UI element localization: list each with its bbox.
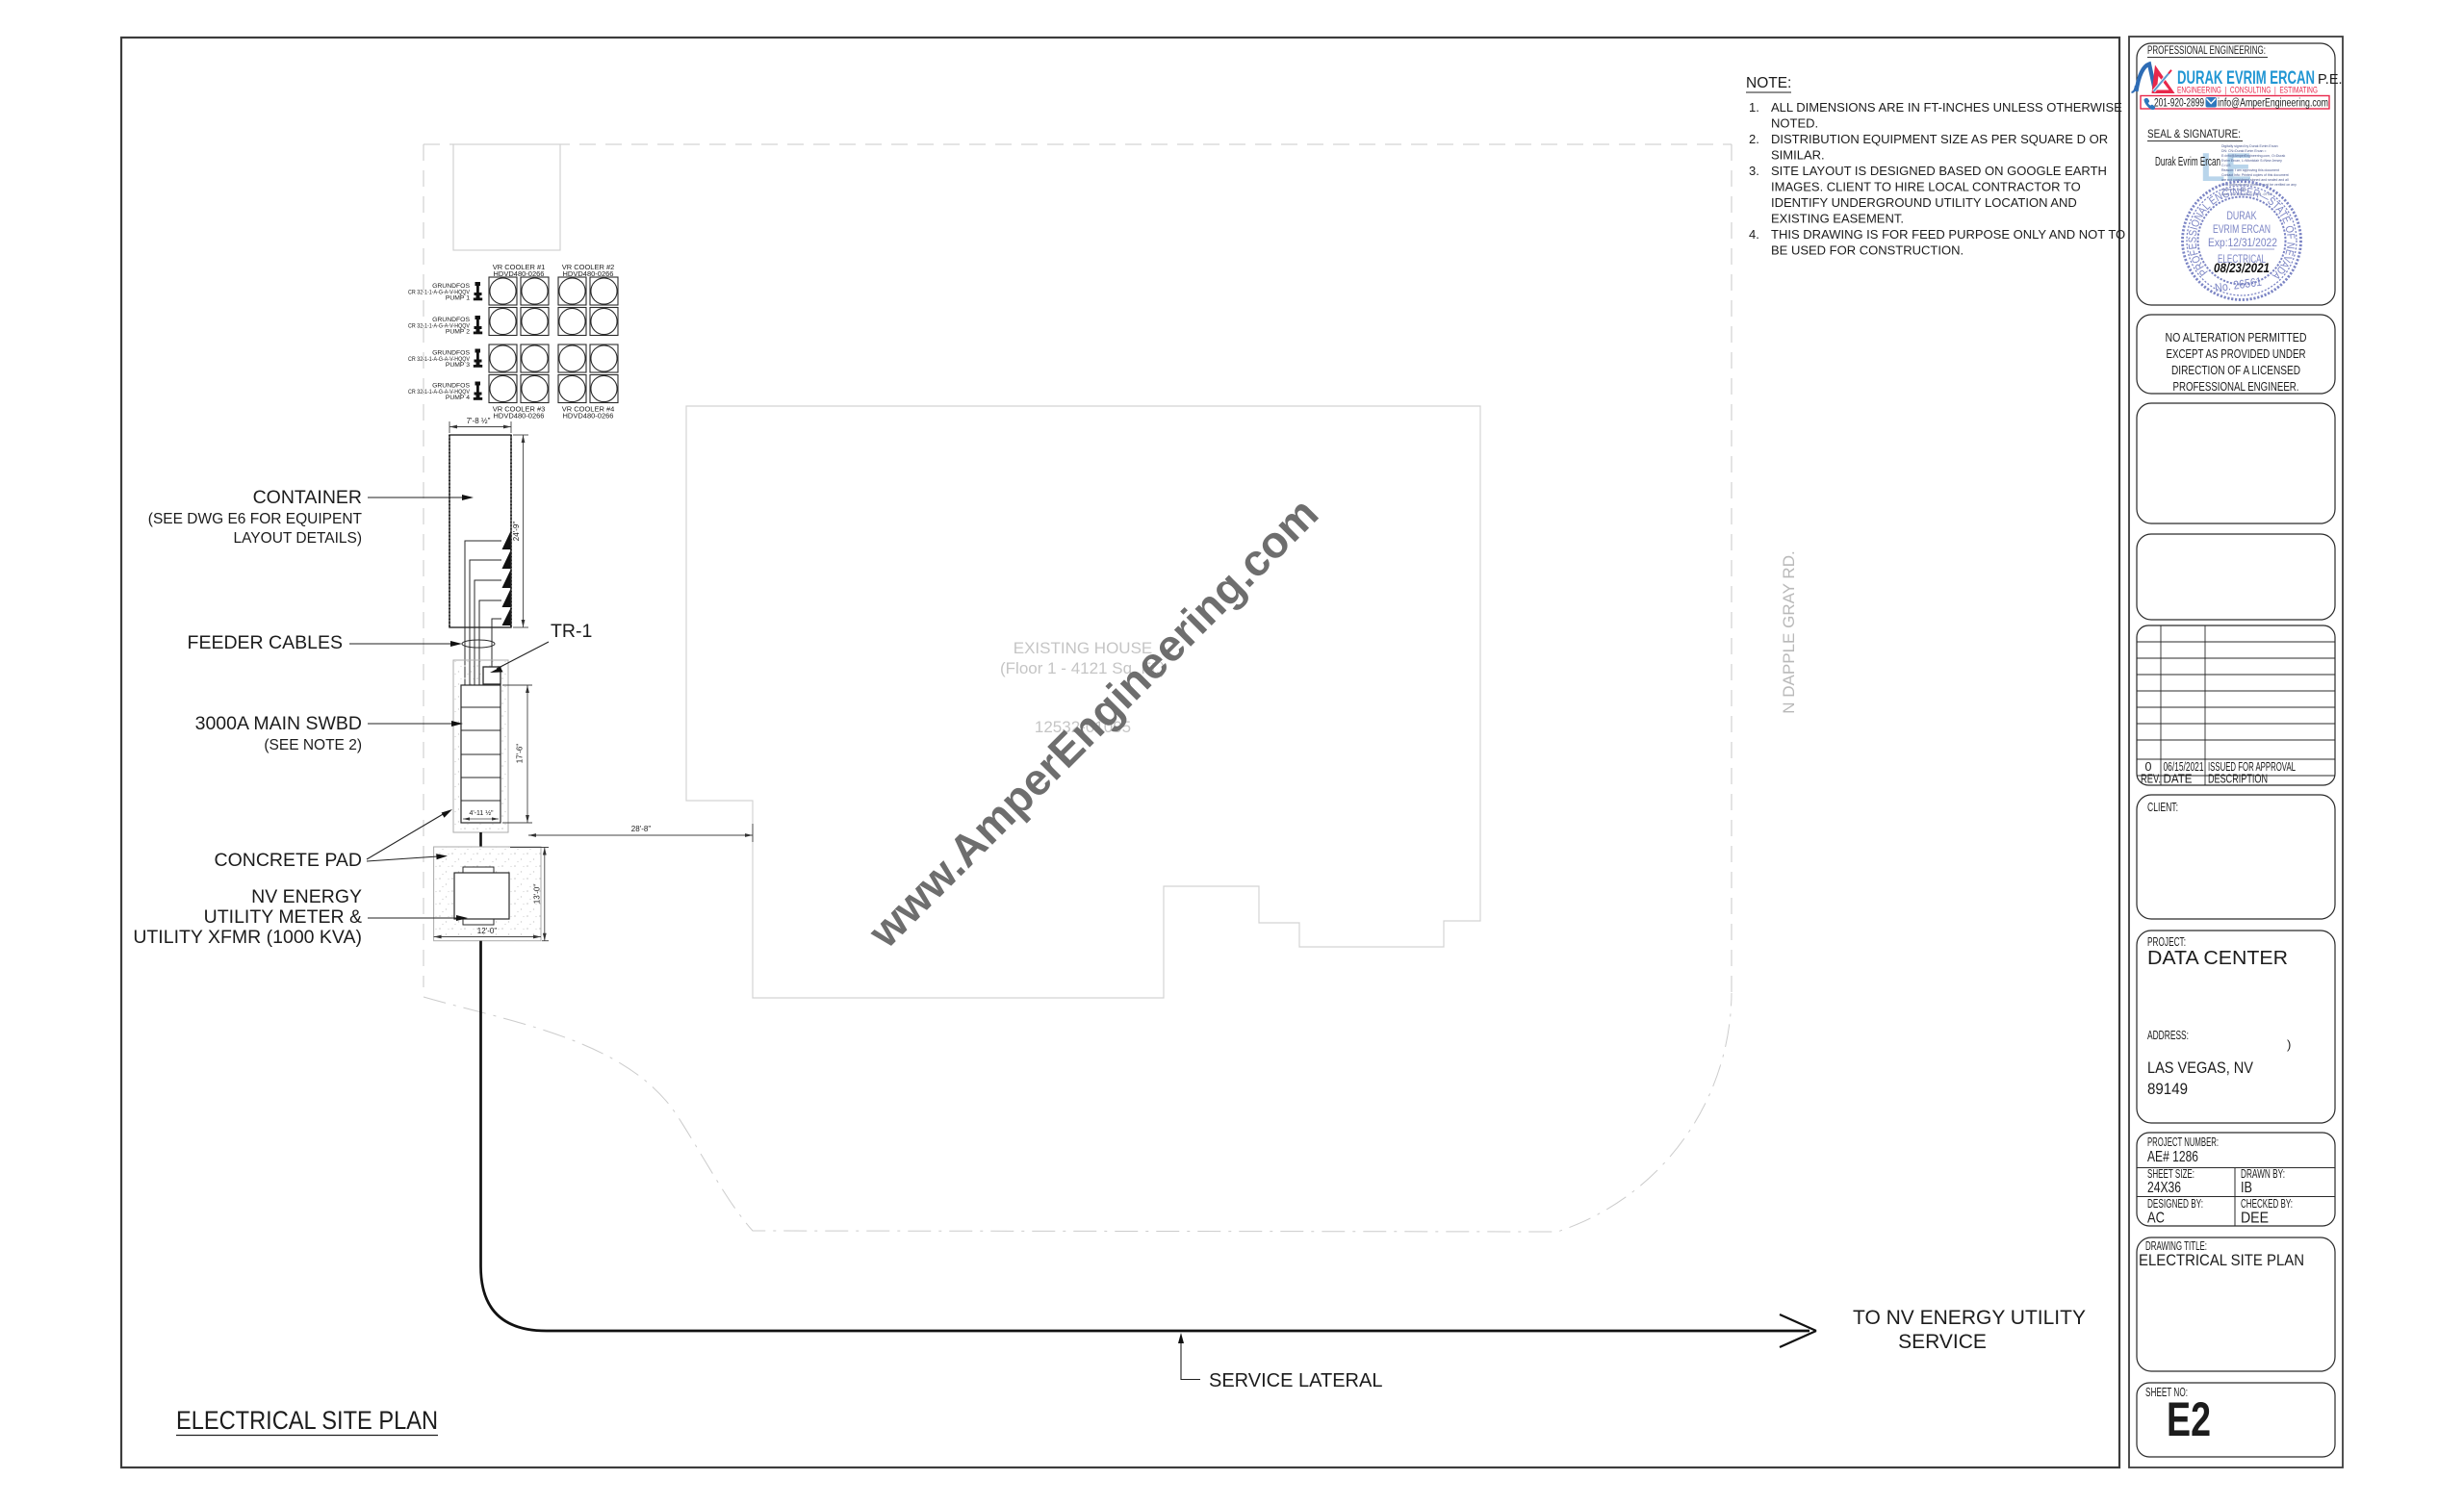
svg-text:DESIGNED BY:: DESIGNED BY: [2147,1197,2203,1211]
svg-text:PROJECT:: PROJECT: [2147,935,2186,949]
svg-text:E=info@AmperEngineering.com, O: E=info@AmperEngineering.com, O=Durak [2221,154,2285,158]
svg-text:DATA CENTER: DATA CENTER [2147,948,2288,969]
svg-text:PUMP 2: PUMP 2 [446,329,470,336]
svg-text:info@AmperEngineering.com: info@AmperEngineering.com [2218,98,2328,110]
svg-text:Contact Info: Printed copies o: Contact Info: Printed copies of this doc… [2221,173,2289,177]
svg-text:www.AmperEngineering.com: www.AmperEngineering.com [858,488,1327,957]
svg-text:DIRECTION OF A LICENSED: DIRECTION OF A LICENSED [2171,363,2300,377]
svg-text:28'-8": 28'-8" [631,825,652,833]
svg-text:THIS DRAWING IS FOR FEED PURPO: THIS DRAWING IS FOR FEED PURPOSE ONLY AN… [1771,227,2125,242]
svg-text:UTILITY XFMR (1000 KVA): UTILITY XFMR (1000 KVA) [133,927,362,948]
svg-text:HDVD480-0266: HDVD480-0266 [563,269,614,278]
svg-text:4.: 4. [1749,227,1759,242]
svg-text:7'-8 ½": 7'-8 ½" [467,417,491,425]
svg-text:IDENTIFY UNDERGROUND UTILITY L: IDENTIFY UNDERGROUND UTILITY LOCATION AN… [1771,195,2077,210]
svg-text:CONCRETE PAD: CONCRETE PAD [215,850,363,871]
svg-text:SHA authenticated printed must: SHA authenticated printed must be verifi… [2221,183,2297,187]
svg-text:PROFESSIONAL ENGINEER.: PROFESSIONAL ENGINEER. [2173,379,2299,394]
svg-text:13'-0": 13'-0" [533,884,542,905]
svg-text:SERVICE LATERAL: SERVICE LATERAL [1209,1370,1382,1391]
svg-text:ENGINEERING | CONSULTING |: ENGINEERING | CONSULTING | ESTIMATING [2177,86,2318,96]
svg-text:LAYOUT DETAILS): LAYOUT DETAILS) [233,530,362,547]
svg-text:17'-6": 17'-6" [516,744,525,764]
svg-text:DESCRIPTION: DESCRIPTION [2208,773,2268,786]
svg-text:EVRIM ERCAN: EVRIM ERCAN [2213,224,2271,236]
svg-text:DATE: DATE [2164,773,2193,786]
svg-text:CONTAINER: CONTAINER [253,487,362,508]
svg-text:HDVD480-0266: HDVD480-0266 [494,269,545,278]
svg-text:ADDRESS:: ADDRESS: [2147,1029,2189,1042]
svg-text:TR-1: TR-1 [551,621,592,642]
svg-text:PROFESSIONAL ENGINEERING:: PROFESSIONAL ENGINEERING: [2147,45,2266,57]
svg-text:CHECKED BY:: CHECKED BY: [2241,1197,2293,1211]
svg-text:HDVD480-0266: HDVD480-0266 [494,412,545,421]
svg-text:FEEDER CABLES: FEEDER CABLES [188,632,343,653]
svg-text:PUMP 4: PUMP 4 [446,395,470,401]
svg-text:ALL DIMENSIONS ARE IN FT-INCHE: ALL DIMENSIONS ARE IN FT-INCHES UNLESS O… [1771,100,2122,115]
svg-text:C=US: C=US [2221,164,2231,167]
svg-text:89149: 89149 [2147,1080,2188,1098]
svg-text:3.: 3. [1749,164,1759,178]
svg-text:3000A MAIN SWBD: 3000A MAIN SWBD [195,713,362,734]
svg-text:IB: IB [2241,1180,2252,1196]
svg-text:ELECTRICAL SITE PLAN: ELECTRICAL SITE PLAN [2139,1251,2304,1269]
svg-text:4'-11 ½": 4'-11 ½" [469,809,494,817]
svg-text:BE USED FOR CONSTRUCTION.: BE USED FOR CONSTRUCTION. [1771,243,1963,258]
svg-text:HDVD480-0266: HDVD480-0266 [563,412,614,421]
svg-text:E2: E2 [2167,1392,2211,1446]
svg-text:AE# 1286: AE# 1286 [2147,1149,2198,1165]
svg-text:24'-9": 24'-9" [512,522,521,542]
svg-text:PUMP 3: PUMP 3 [446,362,470,369]
svg-text:2.: 2. [1749,132,1759,146]
svg-text:UTILITY METER &: UTILITY METER & [204,906,362,928]
svg-text:PUMP 1: PUMP 1 [446,295,470,302]
svg-text:201-920-2899: 201-920-2899 [2154,98,2204,110]
svg-text:24X36: 24X36 [2147,1180,2181,1196]
svg-text:NOTED.: NOTED. [1771,116,1818,131]
svg-text:IMAGES. CLIENT TO HIRE LOCAL C: IMAGES. CLIENT TO HIRE LOCAL CONTRACTOR … [1771,180,2081,194]
svg-text:SEAL & SIGNATURE:: SEAL & SIGNATURE: [2147,129,2241,140]
svg-text:AC: AC [2147,1211,2165,1227]
svg-text:(SEE NOTE 2): (SEE NOTE 2) [264,737,362,753]
svg-text:): ) [2287,1037,2291,1052]
svg-text:DISTRIBUTION EQUIPMENT SIZE AS: DISTRIBUTION EQUIPMENT SIZE AS PER SQUAR… [1771,132,2108,146]
svg-text:SIMILAR.: SIMILAR. [1771,148,1825,163]
svg-text:LAS VEGAS, NV: LAS VEGAS, NV [2147,1059,2254,1077]
svg-text:REV.: REV. [2141,773,2161,786]
svg-text:TO NV ENERGY UTILITY: TO NV ENERGY UTILITY [1853,1307,2086,1329]
svg-text:ELECTRICAL SITE PLAN: ELECTRICAL SITE PLAN [176,1406,438,1435]
svg-text:PROJECT NUMBER:: PROJECT NUMBER: [2147,1135,2219,1149]
svg-text:Durak Evrim Ercan: Durak Evrim Ercan [2155,155,2220,168]
svg-text:NO ALTERATION PERMITTED: NO ALTERATION PERMITTED [2166,330,2307,344]
svg-text:Reason: I am approving this do: Reason: I am approving this document [2221,168,2279,172]
svg-text:CLIENT:: CLIENT: [2147,801,2178,814]
svg-text:P.E.: P.E. [2318,72,2343,88]
svg-text:Exp:12/31/2022: Exp:12/31/2022 [2208,238,2277,249]
svg-text:DRAWN BY:: DRAWN BY: [2241,1167,2285,1181]
svg-text:SERVICE: SERVICE [1898,1331,1987,1353]
svg-text:DN: CN=Durak Evrim Ercan =: DN: CN=Durak Evrim Ercan = [2221,149,2266,153]
svg-text:NOTE:: NOTE: [1746,75,1791,91]
svg-text:SITE LAYOUT IS DESIGNED BASED: SITE LAYOUT IS DESIGNED BASED ON GOOGLE … [1771,164,2107,178]
svg-text:N DAPPLE GRAY RD.: N DAPPLE GRAY RD. [1780,550,1798,713]
svg-text:NV ENERGY: NV ENERGY [251,886,362,907]
svg-text:EXCEPT AS PROVIDED UNDER: EXCEPT AS PROVIDED UNDER [2167,346,2306,361]
svg-text:(SEE DWG E6 FOR EQUIPENT: (SEE DWG E6 FOR EQUIPENT [148,511,363,527]
svg-text:Digitally signed by Durak Evri: Digitally signed by Durak Evrim Ercan [2221,144,2278,148]
svg-text:DEE: DEE [2241,1211,2269,1227]
svg-text:1.: 1. [1749,100,1759,115]
svg-text:DURAK: DURAK [2227,211,2257,222]
svg-text:SHEET SIZE:: SHEET SIZE: [2147,1167,2194,1181]
svg-text:08/23/2021: 08/23/2021 [2214,261,2270,275]
svg-text:Evrim Ercan, L=Montclair S=Ne: Evrim Ercan, L=Montclair S=New Jersey [2221,159,2282,163]
svg-text:EXISTING EASEMENT.: EXISTING EASEMENT. [1771,212,1904,226]
svg-text:12'-0": 12'-0" [477,927,498,935]
